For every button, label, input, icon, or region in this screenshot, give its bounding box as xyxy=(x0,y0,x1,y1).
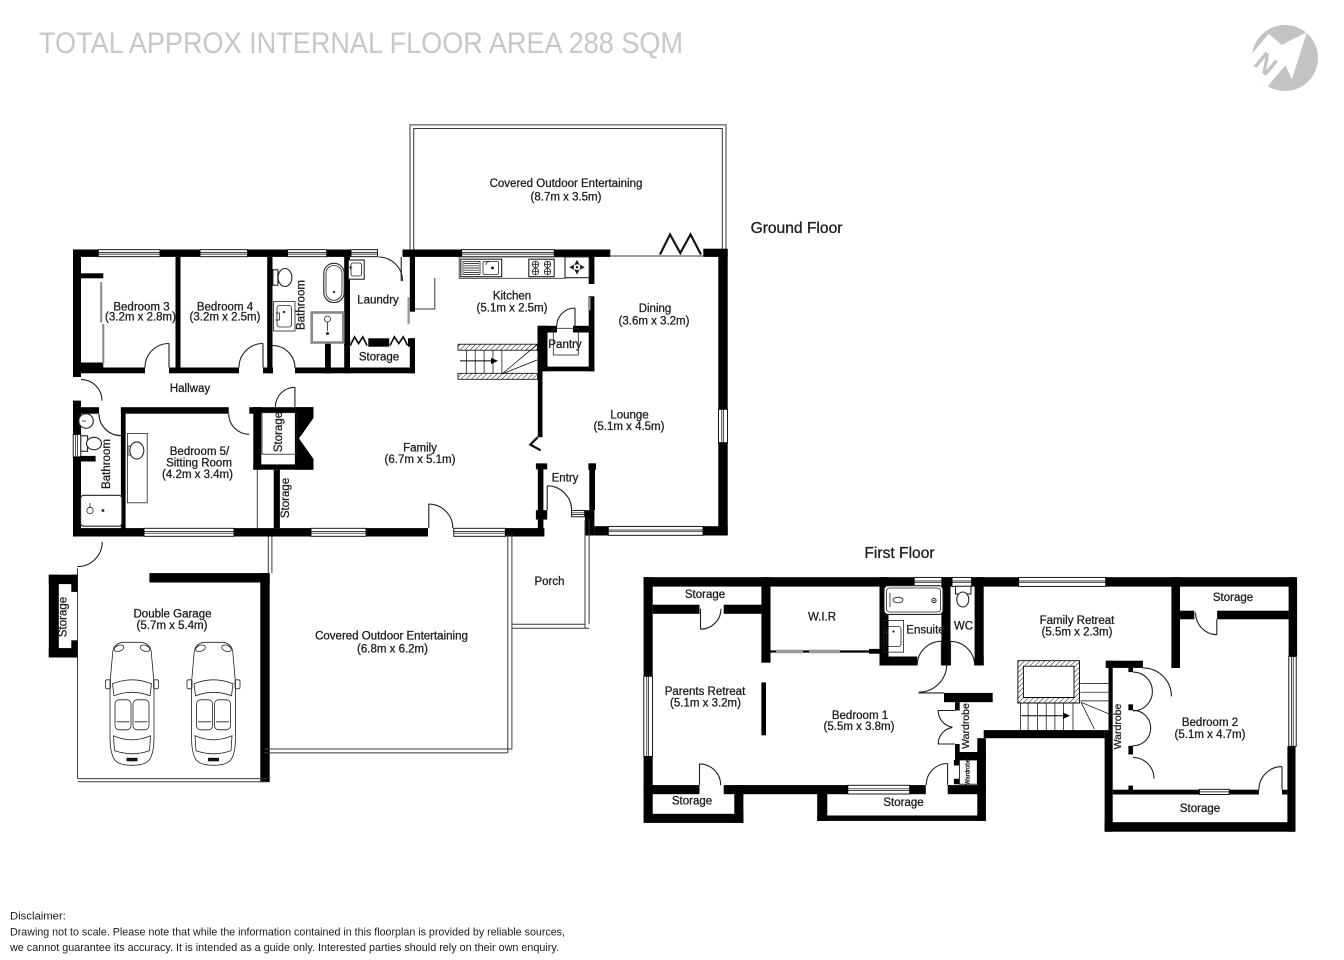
svg-text:Bedroom 2: Bedroom 2 xyxy=(1182,717,1238,729)
svg-text:Parents Retreat: Parents Retreat xyxy=(665,686,746,698)
svg-text:(5.5m x 3.8m): (5.5m x 3.8m) xyxy=(824,721,895,733)
svg-text:W.I.R: W.I.R xyxy=(808,612,836,624)
svg-text:Covered Outdoor Entertaining: Covered Outdoor Entertaining xyxy=(490,178,643,190)
svg-text:Wardrobe: Wardrobe xyxy=(1112,703,1124,749)
svg-text:Bedroom 5/: Bedroom 5/ xyxy=(170,446,230,458)
svg-text:we cannot guarantee its accura: we cannot guarantee its accuracy. It is … xyxy=(9,942,559,954)
svg-text:Dining: Dining xyxy=(639,303,672,315)
svg-text:(5.1m x 2.5m): (5.1m x 2.5m) xyxy=(477,303,548,315)
svg-text:WC: WC xyxy=(954,621,973,633)
svg-text:Hallway: Hallway xyxy=(170,383,211,395)
svg-text:(6.7m x 5.1m): (6.7m x 5.1m) xyxy=(385,454,456,466)
svg-text:Double Garage: Double Garage xyxy=(134,609,212,621)
svg-text:First Floor: First Floor xyxy=(864,545,934,562)
svg-text:Storage: Storage xyxy=(883,797,923,809)
svg-text:(5.1m x 3.2m): (5.1m x 3.2m) xyxy=(670,698,741,710)
svg-text:Storage: Storage xyxy=(1180,803,1220,815)
svg-text:(4.2m x 3.4m): (4.2m x 3.4m) xyxy=(162,469,233,481)
svg-text:Entry: Entry xyxy=(552,473,579,485)
svg-text:(3.2m x 2.5m): (3.2m x 2.5m) xyxy=(190,312,261,324)
svg-text:Storage: Storage xyxy=(1213,592,1253,604)
svg-text:Storage: Storage xyxy=(58,597,70,637)
svg-text:(5.7m x 5.4m): (5.7m x 5.4m) xyxy=(137,620,208,632)
svg-text:Family Retreat: Family Retreat xyxy=(1040,615,1116,627)
svg-text:(5.1m x 4.7m): (5.1m x 4.7m) xyxy=(1175,729,1246,741)
svg-text:(3.6m x 3.2m): (3.6m x 3.2m) xyxy=(619,316,690,328)
svg-text:Wardrobe: Wardrobe xyxy=(966,758,972,785)
svg-text:Porch: Porch xyxy=(534,576,564,588)
svg-text:Storage: Storage xyxy=(359,352,399,364)
svg-text:Disclaimer:: Disclaimer: xyxy=(10,911,66,923)
svg-text:Bathroom: Bathroom xyxy=(296,280,308,330)
svg-text:Storage: Storage xyxy=(280,478,292,518)
svg-text:Laundry: Laundry xyxy=(357,295,399,307)
svg-text:Ensuite: Ensuite xyxy=(906,625,944,637)
svg-text:Covered Outdoor Entertaining: Covered Outdoor Entertaining xyxy=(315,631,468,643)
svg-text:Family: Family xyxy=(403,443,437,455)
svg-text:(3.2m x 2.8m): (3.2m x 2.8m) xyxy=(105,312,176,324)
svg-text:(5.1m x 4.5m): (5.1m x 4.5m) xyxy=(594,421,665,433)
svg-text:Ground Floor: Ground Floor xyxy=(751,220,843,237)
svg-text:Lounge: Lounge xyxy=(610,410,648,422)
svg-text:(8.7m x 3.5m): (8.7m x 3.5m) xyxy=(531,192,602,204)
svg-text:Drawing not to scale. Please n: Drawing not to scale. Please note that w… xyxy=(10,927,565,939)
svg-text:TOTAL APPROX INTERNAL FLOOR AR: TOTAL APPROX INTERNAL FLOOR AREA 288 SQM xyxy=(39,27,683,60)
svg-text:Wardrobe: Wardrobe xyxy=(960,703,972,749)
svg-text:Bathroom: Bathroom xyxy=(101,439,113,489)
svg-text:(5.5m x 2.3m): (5.5m x 2.3m) xyxy=(1042,627,1113,639)
svg-text:Storage: Storage xyxy=(685,589,725,601)
svg-text:(6.8m x 6.2m): (6.8m x 6.2m) xyxy=(357,644,428,656)
svg-text:Pantry: Pantry xyxy=(548,339,581,351)
svg-text:Storage: Storage xyxy=(672,796,712,808)
svg-text:Kitchen: Kitchen xyxy=(493,291,531,303)
svg-text:Sitting Room: Sitting Room xyxy=(166,458,232,470)
svg-text:Storage: Storage xyxy=(273,412,285,452)
